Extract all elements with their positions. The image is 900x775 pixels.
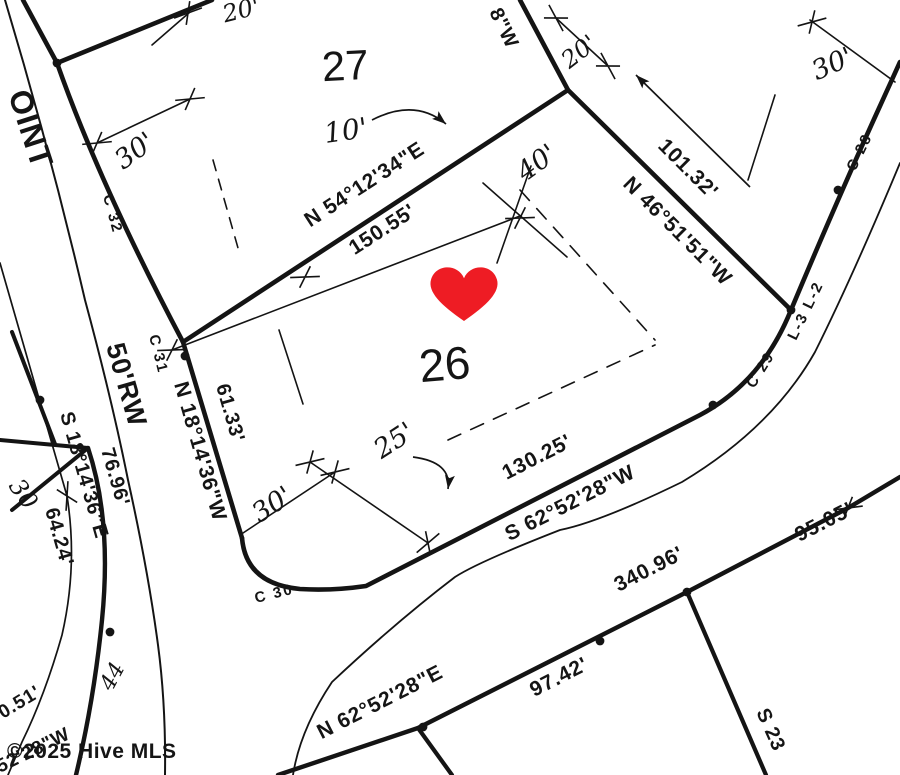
point-marker-9 xyxy=(36,396,45,405)
watermark-layer: ©2025 Hive MLS xyxy=(7,740,177,763)
point-marker-0 xyxy=(53,59,62,68)
point-marker-3 xyxy=(709,401,718,410)
point-marker-1 xyxy=(181,352,190,361)
point-marker-5 xyxy=(834,186,843,195)
point-marker-8 xyxy=(596,637,605,646)
point-marker-2 xyxy=(106,628,115,637)
label-hand-10-lot27: 10' xyxy=(322,111,369,150)
plat-map-page: OINTC 32C 31N 18°14'36"W61.33'50'RWS 18°… xyxy=(0,0,900,775)
mls-watermark: ©2025 Hive MLS xyxy=(7,740,177,763)
label-lot-number-26: 26 xyxy=(417,336,473,392)
label-lot-number-27: 27 xyxy=(321,41,370,90)
point-marker-7 xyxy=(419,723,428,732)
point-marker-6 xyxy=(683,588,692,597)
plat-map: OINTC 32C 31N 18°14'36"W61.33'50'RWS 18°… xyxy=(0,0,900,775)
